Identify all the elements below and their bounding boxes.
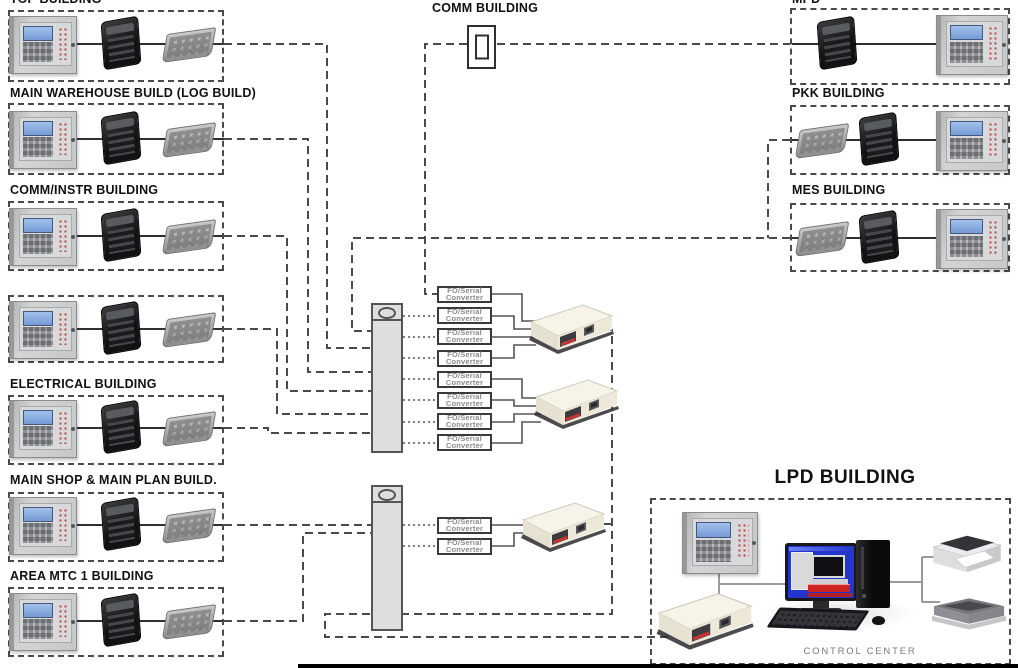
modem-device — [101, 497, 142, 552]
network-diagram: TOP BUILDING MAIN WAREHOUSE BUILD (LOG B… — [0, 0, 1018, 668]
label-warehouse: MAIN WAREHOUSE BUILD (LOG BUILD) — [10, 86, 256, 100]
panel-led-grid — [988, 220, 1000, 255]
panel-face — [19, 22, 72, 66]
trunk-warehouse — [224, 139, 372, 372]
panel-keypad — [23, 523, 54, 543]
converter-label-line2: Converter — [446, 422, 483, 429]
panel-lock — [71, 138, 75, 142]
panel-keypad — [950, 138, 983, 159]
panel-keypad — [696, 540, 731, 562]
media-converter-switch — [520, 498, 606, 554]
panel-lcd — [23, 121, 54, 136]
converter-label-line2: Converter — [446, 401, 483, 408]
fo-serial-converter: FO/SerialConverter — [437, 328, 492, 345]
cabinet-port — [373, 305, 401, 321]
fo-serial-converter: FO/SerialConverter — [437, 434, 492, 451]
fibre-cabinet-1 — [371, 303, 403, 453]
fo-serial-converter: FO/SerialConverter — [437, 371, 492, 388]
converter-label-line2: Converter — [446, 443, 483, 450]
fire-alarm-panel — [9, 497, 77, 555]
panel-face — [19, 406, 72, 450]
fo-serial-converter: FO/SerialConverter — [437, 286, 492, 303]
panel-led-grid — [58, 604, 69, 637]
converter-label-line2: Converter — [446, 526, 483, 533]
trunk-comm-building — [425, 44, 467, 294]
label-electrical: ELECTRICAL BUILDING — [10, 377, 157, 391]
label-control-center: CONTROL CENTER — [790, 646, 930, 657]
panel-face — [19, 599, 72, 643]
fo-serial-converter: FO/SerialConverter — [437, 307, 492, 324]
fo-serial-converter: FO/SerialConverter — [437, 538, 492, 555]
label-main-shop: MAIN SHOP & MAIN PLAN BUILD. — [10, 473, 217, 487]
fire-alarm-panel — [936, 15, 1008, 75]
panel-led-grid — [58, 219, 69, 252]
alarm-banner — [808, 584, 850, 592]
inkjet-printer — [928, 528, 1006, 580]
cabinet-leads — [403, 316, 437, 546]
panel-keypad — [23, 42, 54, 62]
converter-label-line2: Converter — [446, 547, 483, 554]
panel-led-grid — [58, 312, 69, 345]
modem-device — [101, 400, 142, 455]
converter-label-line2: Converter — [446, 380, 483, 387]
panel-lcd — [23, 26, 54, 41]
panel-face — [19, 117, 72, 161]
label-lpd-building: LPD BUILDING — [715, 467, 975, 489]
label-area-mtc: AREA MTC 1 BUILDING — [10, 569, 154, 583]
mouse — [872, 616, 885, 625]
label-mes: MES BUILDING — [792, 183, 885, 197]
modem-device — [101, 111, 142, 166]
panel-led-grid — [58, 411, 69, 444]
bottom-edge-bar — [298, 664, 1018, 668]
panel-lcd — [950, 25, 983, 40]
trunk-area-mtc — [224, 533, 372, 621]
fire-alarm-panel — [9, 16, 77, 74]
fire-alarm-panel — [9, 111, 77, 169]
label-comm-instr: COMM/INSTR BUILDING — [10, 183, 158, 197]
modem-device — [817, 16, 858, 71]
fire-alarm-panel — [9, 593, 77, 651]
panel-lcd — [23, 218, 54, 233]
panel-face — [19, 214, 72, 258]
panel-lock — [1002, 43, 1006, 47]
converter-label-line2: Converter — [446, 316, 483, 323]
panel-lcd — [23, 311, 54, 326]
media-converter-switch — [528, 300, 614, 356]
panel-lcd — [23, 507, 54, 522]
panel-face — [692, 518, 753, 566]
panel-led-grid — [58, 27, 69, 60]
trunk-electrical — [224, 428, 372, 433]
media-converter-switch — [655, 588, 754, 652]
fo-serial-converter: FO/SerialConverter — [437, 413, 492, 430]
panel-keypad — [23, 619, 54, 639]
trunk-pkk — [768, 140, 790, 238]
panel-face — [946, 117, 1003, 163]
panel-lcd — [950, 219, 983, 234]
panel-lock — [71, 328, 75, 332]
fibre-cabinet-2 — [371, 485, 403, 631]
modem-device — [859, 210, 900, 265]
panel-face — [19, 503, 72, 547]
fo-serial-converter: FO/SerialConverter — [437, 392, 492, 409]
panel-lock — [71, 620, 75, 624]
panel-lcd — [696, 522, 731, 538]
modem-device — [101, 208, 142, 263]
fire-alarm-panel — [936, 209, 1008, 269]
fo-serial-converter: FO/SerialConverter — [437, 350, 492, 367]
modem-device — [859, 112, 900, 167]
panel-led-grid — [988, 26, 1000, 61]
label-mpd: MPD — [792, 0, 820, 6]
fire-alarm-panel — [9, 301, 77, 359]
panel-lcd — [950, 121, 983, 136]
fo-serial-converter: FO/SerialConverter — [437, 517, 492, 534]
panel-keypad — [23, 137, 54, 157]
media-converter-switch — [533, 375, 619, 431]
fire-alarm-panel — [682, 512, 758, 574]
label-pkk: PKK BUILDING — [792, 86, 885, 100]
panel-lcd — [23, 410, 54, 425]
converter-label-line2: Converter — [446, 337, 483, 344]
panel-led-grid — [988, 122, 1000, 157]
panel-lock — [71, 43, 75, 47]
label-comm-building: COMM BUILDING — [432, 1, 538, 15]
monitor — [785, 543, 857, 601]
fire-alarm-panel — [9, 400, 77, 458]
modem-device — [101, 16, 142, 71]
panel-keypad — [23, 426, 54, 446]
panel-face — [946, 215, 1003, 261]
fire-alarm-panel — [9, 208, 77, 266]
label-top-building: TOP BUILDING — [10, 0, 102, 6]
panel-face — [19, 307, 72, 351]
modem-device — [101, 301, 142, 356]
panel-lock — [71, 524, 75, 528]
converter-label-line2: Converter — [446, 359, 483, 366]
modem-device — [101, 593, 142, 648]
panel-lock — [71, 427, 75, 431]
panel-led-grid — [58, 508, 69, 541]
panel-lcd — [23, 603, 54, 618]
cabinet-port — [373, 487, 401, 503]
panel-lock — [1002, 237, 1006, 241]
computer-tower — [856, 540, 890, 608]
panel-keypad — [950, 42, 983, 63]
panel-keypad — [23, 327, 54, 347]
panel-lock — [71, 235, 75, 239]
panel-lock — [1002, 139, 1006, 143]
panel-led-grid — [58, 122, 69, 155]
alarm-banner-2 — [808, 593, 852, 597]
panel-face — [946, 21, 1003, 67]
fire-alarm-panel — [936, 111, 1008, 171]
dot-matrix-printer — [930, 594, 1008, 630]
comm-junction-box — [467, 25, 496, 69]
converter-label-line2: Converter — [446, 295, 483, 302]
software-map-panel — [812, 555, 845, 578]
panel-keypad — [23, 234, 54, 254]
trunk-comm-instr — [224, 236, 372, 391]
keyboard — [766, 607, 869, 630]
panel-led-grid — [737, 523, 749, 559]
monitor-screen — [788, 546, 854, 598]
panel-keypad — [950, 236, 983, 257]
panel-lock — [752, 541, 756, 545]
